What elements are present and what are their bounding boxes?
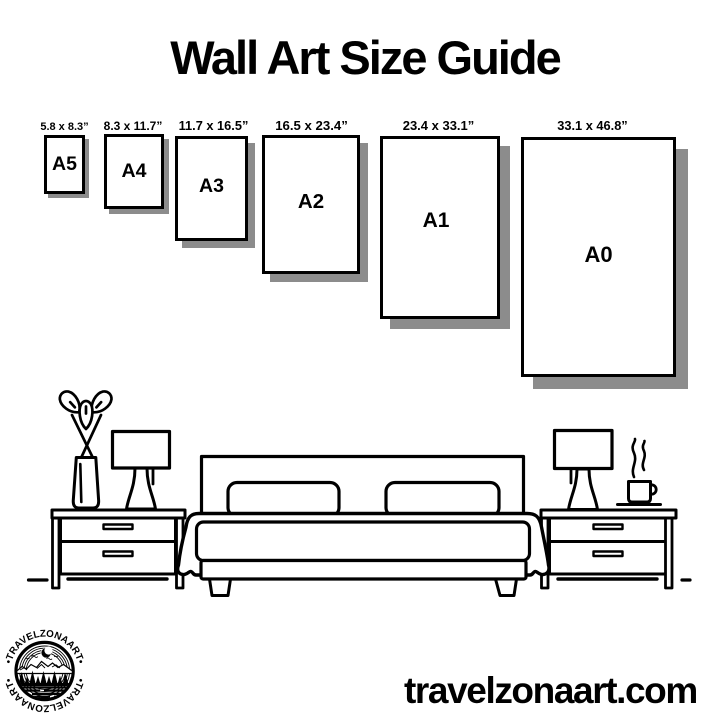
svg-text:•TRAVELZONAART•: •TRAVELZONAART• xyxy=(3,628,85,665)
